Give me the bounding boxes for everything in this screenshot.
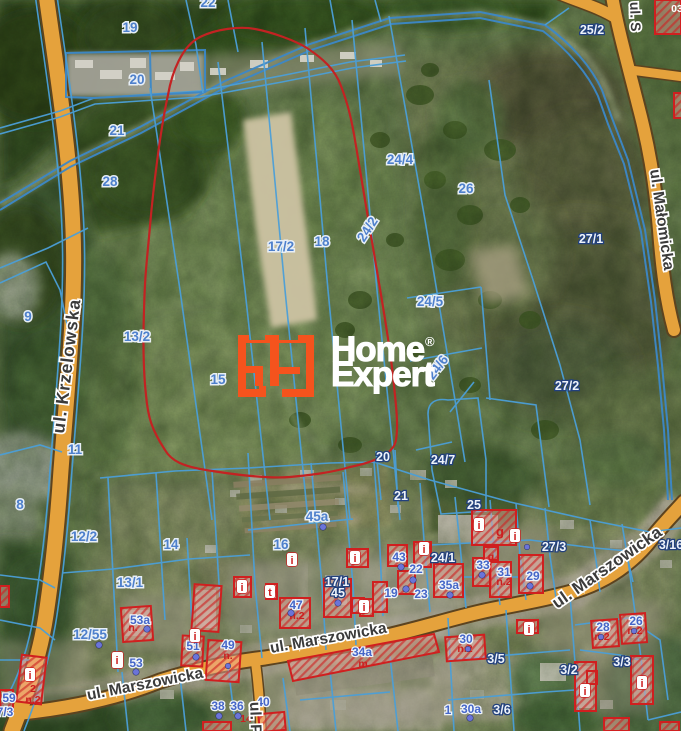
svg-text:03: 03 [671, 3, 681, 15]
svg-text:i: i [422, 544, 425, 556]
svg-text:t: t [268, 587, 272, 599]
svg-text:n.: n. [223, 650, 232, 662]
svg-text:24/7: 24/7 [431, 453, 455, 467]
svg-text:23: 23 [414, 587, 428, 601]
svg-text:7/3: 7/3 [0, 705, 14, 719]
svg-text:ul. P: ul. P [246, 702, 264, 731]
svg-text:25: 25 [467, 498, 481, 512]
svg-text:45a: 45a [306, 509, 329, 524]
svg-text:26: 26 [458, 181, 474, 196]
svg-text:36: 36 [230, 699, 244, 713]
svg-text:20: 20 [129, 72, 144, 87]
svg-text:g: g [488, 551, 494, 563]
svg-text:18: 18 [314, 234, 330, 249]
svg-text:n.2: n.2 [496, 576, 511, 588]
svg-text:i: i [290, 555, 293, 567]
svg-text:i: i [640, 678, 643, 690]
svg-text:®: ® [425, 334, 435, 349]
svg-text:i: i [28, 670, 31, 682]
svg-text:i: i [353, 553, 356, 565]
svg-text:43: 43 [392, 550, 406, 564]
svg-text:12/2: 12/2 [71, 529, 97, 544]
svg-text:20: 20 [376, 450, 390, 464]
svg-text:9: 9 [24, 309, 32, 324]
svg-text:g: g [496, 524, 504, 539]
svg-text:i: i [362, 602, 365, 614]
svg-text:15: 15 [210, 372, 226, 387]
svg-text:21: 21 [109, 123, 125, 138]
svg-text:27/1: 27/1 [579, 232, 603, 246]
svg-text:19: 19 [122, 20, 137, 35]
svg-text:13/1: 13/1 [117, 575, 144, 590]
svg-text:11: 11 [68, 442, 83, 457]
svg-text:i: i [477, 520, 480, 532]
svg-text:27/3: 27/3 [542, 540, 566, 554]
svg-text:29: 29 [526, 569, 540, 583]
svg-text:45: 45 [331, 586, 345, 600]
svg-text:30a: 30a [461, 702, 481, 716]
svg-text:i: i [240, 582, 243, 594]
svg-text:19: 19 [384, 586, 398, 600]
svg-text:27/2: 27/2 [555, 379, 579, 393]
svg-text:28: 28 [102, 174, 118, 189]
svg-text:14: 14 [163, 537, 179, 552]
svg-text:22: 22 [409, 562, 423, 576]
svg-text:i: i [193, 631, 196, 643]
svg-text:16: 16 [273, 537, 289, 552]
svg-text:Expert: Expert [331, 355, 435, 394]
svg-text:24/1: 24/1 [431, 551, 455, 565]
svg-text:3/2: 3/2 [560, 663, 577, 677]
svg-text:59: 59 [2, 691, 16, 705]
svg-text:m: m [358, 658, 367, 670]
svg-text:12/55: 12/55 [73, 627, 107, 642]
svg-text:24/5: 24/5 [417, 294, 444, 309]
svg-text:i: i [513, 531, 516, 543]
svg-text:22: 22 [200, 0, 215, 10]
svg-text:38: 38 [211, 699, 225, 713]
svg-text:35a: 35a [439, 578, 459, 592]
svg-text:3/6: 3/6 [493, 703, 510, 717]
svg-text:i: i [583, 686, 586, 698]
svg-text:17/2: 17/2 [268, 239, 294, 254]
svg-text:ul. S: ul. S [627, 2, 644, 32]
svg-text:3/3: 3/3 [613, 655, 630, 669]
svg-text:n.2: n.2 [25, 694, 40, 706]
svg-text:21: 21 [394, 489, 408, 503]
svg-text:24/4: 24/4 [387, 152, 414, 167]
svg-text:i: i [527, 624, 530, 636]
svg-text:3/5: 3/5 [487, 652, 504, 666]
svg-text:53: 53 [129, 656, 143, 670]
svg-text:1: 1 [445, 703, 452, 717]
svg-text:25/2: 25/2 [580, 23, 604, 37]
svg-text:i: i [115, 655, 118, 667]
svg-text:34a: 34a [352, 645, 372, 659]
svg-text:n.: n. [128, 622, 137, 634]
svg-text:13/2: 13/2 [124, 329, 150, 344]
svg-text:8: 8 [16, 497, 24, 512]
